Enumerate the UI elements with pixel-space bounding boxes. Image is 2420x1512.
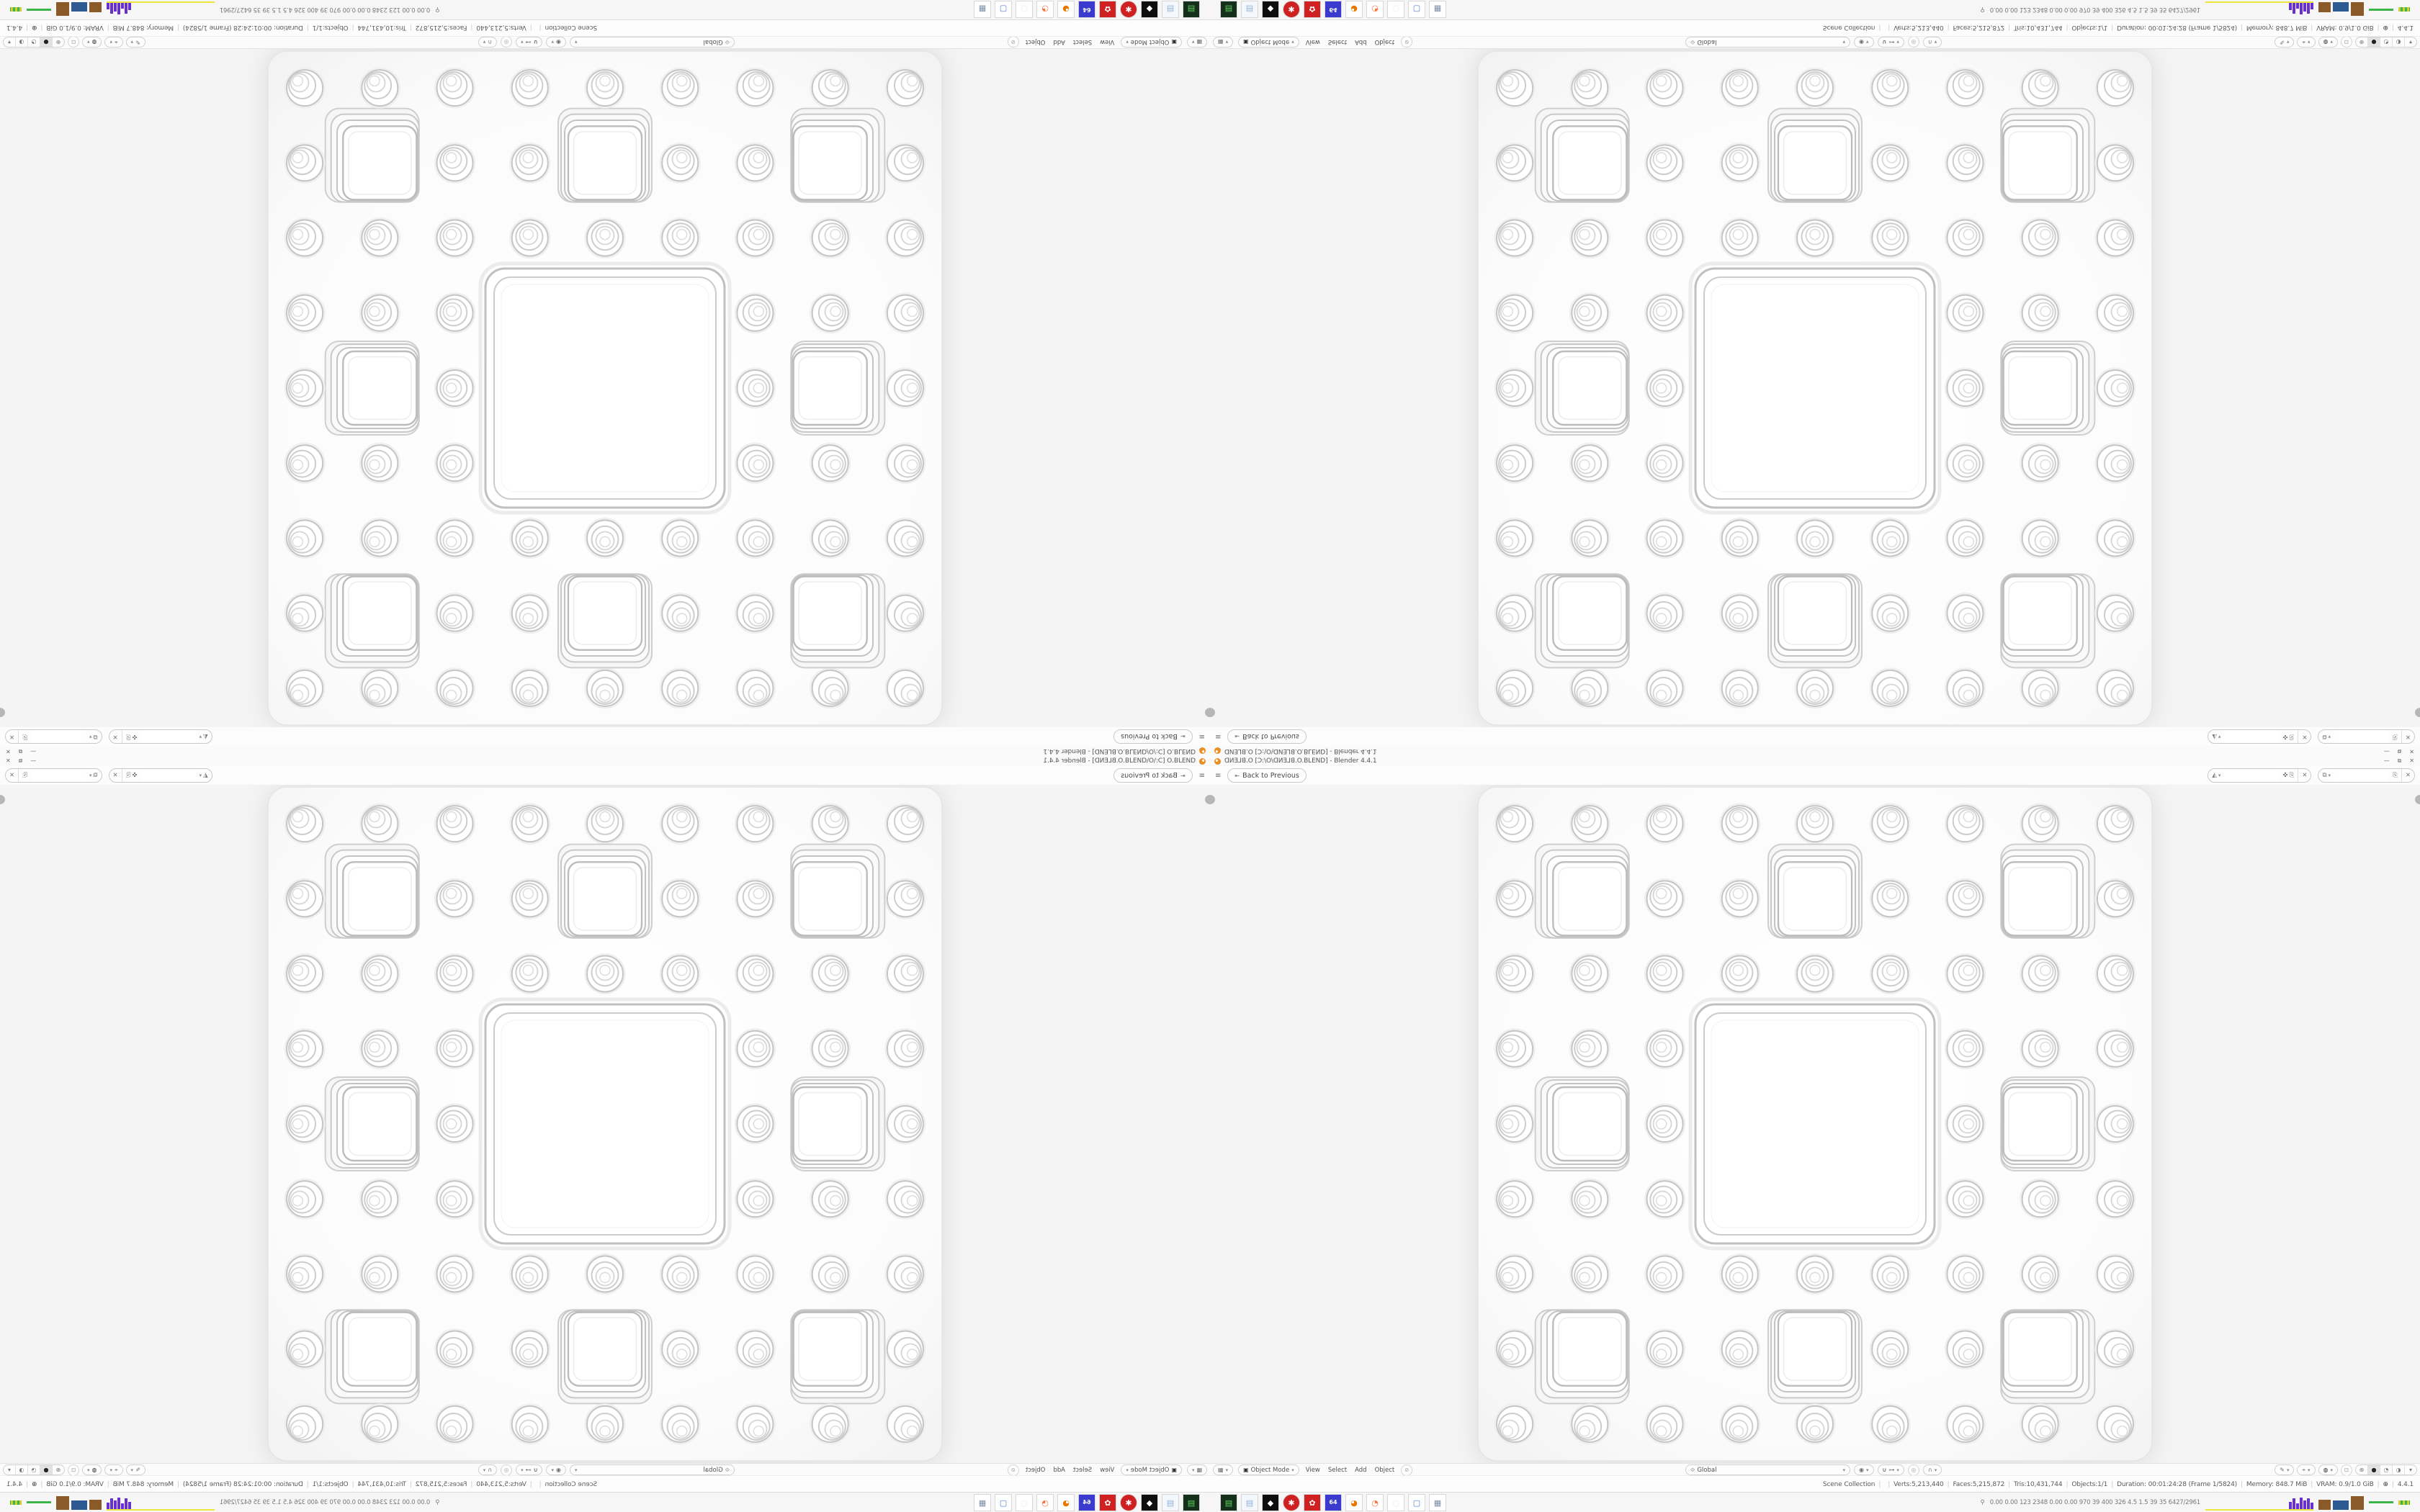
chevron-down-icon: ▾	[552, 1467, 555, 1473]
taskbar-app-blender[interactable]: ◕	[1345, 1494, 1363, 1511]
viewport-header: ▦ ▾ ▣ Object Mode ▾ View Select Add Obje…	[1210, 36, 2420, 49]
snap-dropdown[interactable]: ∪ ⊶ ▾	[1878, 37, 1904, 48]
unlink-icon[interactable]: ✕	[2406, 733, 2411, 740]
falloff-dropdown[interactable]: ∩ ▾	[478, 1464, 497, 1475]
sidebar-toggle-handle[interactable]	[2415, 708, 2420, 717]
taskbar-app-red-gear[interactable]: ✱	[1120, 1494, 1137, 1511]
chevron-down-icon: ▾	[1866, 1467, 1869, 1473]
shading-solid-button[interactable]: ●	[2367, 37, 2380, 47]
gizmo-dropdown[interactable]: ⌖ ▾	[2297, 1464, 2315, 1475]
annotate-dropdown[interactable]: ✎ ▾	[126, 37, 145, 48]
pin-icon[interactable]: ✜	[2282, 772, 2287, 779]
editor-type-icon: ▦	[1218, 39, 1224, 45]
xray-toggle[interactable]: ⊡	[2341, 37, 2352, 48]
scene-selector[interactable]: ◭ ▾ ✜ ⎘ ✕	[2208, 768, 2311, 783]
window-title: ꓷИƎ⅃ꓭ.O [Ɔ:\O\ꓷИƎ⅃ꓭ.O.BLEND] - Blender 4…	[1043, 757, 1196, 765]
gizmo-dropdown[interactable]: ⌖ ▾	[2297, 37, 2315, 48]
chevron-down-icon: ▾	[1842, 1467, 1845, 1473]
toolbar-toggle-handle[interactable]	[1205, 795, 1210, 804]
chevron-down-icon[interactable]: ▾	[200, 773, 202, 778]
proportional-editing-toggle[interactable]: ◎	[501, 1464, 512, 1476]
editor-type-button[interactable]: ▦ ▾	[1213, 1464, 1233, 1475]
copy-icon[interactable]: ⎘	[2290, 733, 2295, 740]
scene-icon: ◭	[203, 733, 208, 740]
cpu-graph	[2205, 1495, 2313, 1511]
menu-view[interactable]: View	[1304, 1467, 1322, 1474]
view-layer-name-input[interactable]	[31, 730, 86, 743]
close-button[interactable]: ✕	[2409, 757, 2414, 765]
cpu-graph	[2205, 1, 2313, 17]
menu-hamburger-icon[interactable]: ≡	[1215, 733, 1221, 741]
viewport-3d[interactable]	[1210, 49, 2420, 727]
view-layer-selector[interactable]: ⧉ ▾ ⎘ ✕	[2318, 768, 2415, 783]
gizmo-icon: ⌖	[115, 1467, 118, 1474]
chevron-down-icon: ▾	[521, 40, 524, 45]
chevron-down-icon: ▾	[2330, 40, 2333, 45]
status-memory: Memory: 848.7 MiB	[2237, 1481, 2307, 1488]
pivot-icon: ◉	[556, 39, 561, 45]
menu-add[interactable]: Add	[1353, 1467, 1368, 1474]
shading-wireframe-button[interactable]: ⊕	[53, 1465, 64, 1475]
gizmo-dropdown[interactable]: ⌖ ▾	[105, 37, 123, 48]
view-layer-selector[interactable]: ⧉ ▾ ⎘ ✕	[2318, 729, 2415, 744]
taskbar-app-ghost[interactable]: ○	[1387, 1, 1404, 18]
annotate-dropdown[interactable]: ✎ ▾	[2275, 1464, 2294, 1475]
menger-sponge-render	[1477, 50, 2153, 726]
taskbar-app-floppy-64[interactable]: 64	[1325, 1494, 1342, 1511]
view-layer-selector[interactable]: ⧉ ▾ ⎘ ✕	[5, 768, 102, 783]
taskbar-app-red-gear[interactable]: ✱	[1120, 1, 1137, 18]
active-tool-icon[interactable]: ⊘	[1401, 37, 1412, 48]
viewport-3d[interactable]	[1210, 785, 2420, 1463]
shading-solid-button[interactable]: ●	[40, 37, 53, 47]
scene-icon: ◭	[2212, 733, 2217, 740]
status-objects: Objects:1/1	[2062, 1481, 2107, 1488]
editor-type-icon: ▦	[1218, 1467, 1224, 1473]
status-objects: Objects:1/1	[313, 1481, 358, 1488]
shading-mode-switch: ⊕ ● ◔ ◑ ▾	[2355, 37, 2417, 48]
person-icon: ⚲	[1980, 6, 1984, 13]
restore-button[interactable]: ⧉	[2398, 747, 2402, 755]
unlink-icon[interactable]: ✕	[113, 772, 118, 779]
sidebar-toggle-handle[interactable]	[2415, 795, 2420, 804]
copy-icon[interactable]: ⎘	[126, 733, 131, 740]
shading-material-button[interactable]: ◔	[2380, 37, 2392, 47]
pin-icon[interactable]: ✜	[132, 772, 137, 779]
proportional-editing-toggle[interactable]: ◎	[1908, 1464, 1919, 1476]
back-arrow-icon: ⇤	[1234, 773, 1240, 779]
taskbar-app-disk-utility[interactable]: ▤	[1183, 1, 1200, 18]
menu-object[interactable]: Object	[1373, 1467, 1397, 1474]
status-tris: Tris:10,431,744	[2004, 24, 2062, 32]
status-faces: Faces:5,215,872	[416, 1481, 477, 1488]
menu-view[interactable]: View	[1098, 1467, 1116, 1474]
sidebar-toggle-handle[interactable]	[0, 795, 5, 804]
chevron-down-icon: ▾	[1192, 1467, 1195, 1473]
gizmo-dropdown[interactable]: ⌖ ▾	[105, 1464, 123, 1475]
disk-block	[89, 1500, 102, 1510]
shading-solid-button[interactable]: ●	[40, 1465, 53, 1475]
annotate-dropdown[interactable]: ✎ ▾	[126, 1464, 145, 1475]
taskbar-app-red-gear[interactable]: ✱	[1283, 1, 1300, 18]
unlink-icon[interactable]: ✕	[2406, 772, 2411, 779]
unlink-icon[interactable]: ✕	[9, 733, 14, 740]
taskbar-app-blender[interactable]: ◕	[1057, 1494, 1075, 1511]
taskbar-app-floppy-64[interactable]: 64	[1078, 1, 1095, 18]
minimize-button[interactable]: —	[30, 747, 36, 755]
snap-target-icon: ⊶	[526, 39, 532, 45]
menu-hamburger-icon[interactable]: ≡	[1215, 772, 1221, 780]
taskbar-app-blender[interactable]: ◕	[1345, 1, 1363, 18]
transform-orientation-dropdown[interactable]: ⟐ Global ▾	[570, 37, 735, 48]
annotate-dropdown[interactable]: ✎ ▾	[2275, 37, 2294, 48]
toolbar-toggle-handle[interactable]	[1210, 795, 1215, 804]
gizmo-icon: ⌖	[2302, 39, 2305, 46]
xray-toggle[interactable]: ⊡	[68, 37, 79, 48]
cpu-graph	[107, 1, 215, 17]
menu-add[interactable]: Add	[1052, 1467, 1066, 1474]
chevron-down-icon[interactable]: ▾	[89, 734, 92, 739]
window-title: ꓷИƎ⅃ꓭ.O [Ɔ:\O\ꓷИƎ⅃ꓭ.O.BLEND] - Blender 4…	[1043, 747, 1196, 755]
shading-rendered-button[interactable]: ◑	[16, 37, 28, 47]
restore-button[interactable]: ⧉	[19, 747, 23, 755]
minimize-button[interactable]: —	[30, 757, 36, 765]
taskbar-app-notepad[interactable]: ▤	[1162, 1, 1179, 18]
viewport-header: ▦ ▾ ▣ Object Mode ▾ View Select Add Obje…	[0, 36, 1210, 49]
chevron-down-icon: ▾	[87, 1467, 90, 1473]
blender-topbar: ≡ ⇤ Back to Previous ◭ ▾ ✜ ⎘	[1210, 726, 2420, 746]
pin-icon[interactable]: ✜	[132, 733, 137, 740]
blender-window: ꓷИƎ⅃ꓭ.O [Ɔ:\O\ꓷИƎ⅃ꓭ.O.BLEND] - Blender 4…	[0, 0, 1210, 756]
falloff-dropdown[interactable]: ∩ ▾	[1923, 1464, 1942, 1475]
view-layer-name-input[interactable]	[2334, 769, 2389, 782]
taskbar-app-display[interactable]: ▢	[1408, 1, 1425, 18]
taskbar-app-disk-utility[interactable]: ▤	[1220, 1494, 1237, 1511]
network-graph-line	[27, 1501, 51, 1503]
network-graph-line	[27, 9, 51, 12]
taskbar-app-graphics[interactable]: ◆	[1141, 1494, 1158, 1511]
taskbar-app-graphics[interactable]: ◆	[1262, 1494, 1279, 1511]
menu-object[interactable]: Object	[1024, 39, 1047, 46]
blender-logo-icon	[1214, 758, 1221, 765]
transform-orientation-dropdown[interactable]: ⟐ Global ▾	[570, 1464, 735, 1475]
copy-icon[interactable]: ⎘	[2393, 733, 2398, 740]
taskbar-app-red-settings[interactable]: ✿	[1304, 1, 1321, 18]
desktop-taskbar: ▤ ▤ ◆ ✱ ✿ 64 ◕ ◔ ○ ▢ ▦ ⚲ 0.00 0.00 123 2…	[0, 0, 1210, 20]
taskbar-app-calculator[interactable]: ▦	[1429, 1494, 1446, 1511]
mode-dropdown[interactable]: ▣ Object Mode ▾	[1238, 37, 1299, 48]
copy-icon[interactable]: ⎘	[126, 772, 131, 779]
shading-dropdown[interactable]: ▾	[4, 37, 16, 47]
chevron-down-icon: ▾	[575, 1467, 578, 1473]
shading-dropdown[interactable]: ▾	[2404, 37, 2416, 47]
pivot-icon: ◉	[556, 1467, 561, 1473]
menu-select[interactable]: Select	[1327, 1467, 1348, 1474]
menu-select[interactable]: Select	[1327, 39, 1348, 46]
shading-material-button[interactable]: ◔	[28, 37, 40, 47]
xray-toggle[interactable]: ⊡	[68, 1464, 79, 1476]
chevron-down-icon: ▾	[1226, 40, 1229, 45]
shading-rendered-button[interactable]: ◑	[16, 1465, 28, 1475]
proportional-editing-toggle[interactable]: ◎	[501, 37, 512, 48]
chevron-down-icon: ▾	[1226, 1467, 1229, 1473]
unlink-icon[interactable]: ✕	[9, 772, 14, 779]
blender-window: ꓷИƎ⅃ꓭ.O [Ɔ:\O\ꓷИƎ⅃ꓭ.O.BLEND] - Blender 4…	[1210, 0, 2420, 756]
status-verts: Verts:5,213,440	[476, 24, 535, 32]
editor-type-button[interactable]: ▦ ▾	[1213, 37, 1233, 48]
shading-mode-switch: ⊕ ● ◔ ◑ ▾	[3, 37, 65, 48]
status-duration: Duration: 00:01:24:28 (Frame 1/5824)	[2107, 24, 2237, 32]
menu-hamburger-icon[interactable]: ≡	[1199, 733, 1205, 741]
chevron-down-icon[interactable]: ▾	[2329, 773, 2331, 778]
status-tris: Tris:10,431,744	[358, 1481, 416, 1488]
blender-logo-icon	[1199, 748, 1206, 755]
falloff-dropdown[interactable]: ∩ ▾	[1923, 37, 1942, 48]
shading-material-button[interactable]: ◔	[28, 1465, 40, 1475]
taskbar-app-disk-utility[interactable]: ▤	[1183, 1494, 1200, 1511]
overlays-dropdown[interactable]: ◍ ▾	[82, 1464, 102, 1475]
taskbar-app-graphics[interactable]: ◆	[1262, 1, 1279, 18]
falloff-icon: ∩	[1928, 39, 1932, 45]
shading-rendered-button[interactable]: ◑	[2392, 37, 2404, 47]
taskbar-app-graphics[interactable]: ◆	[1141, 1, 1158, 18]
taskbar-app-ghost[interactable]: ○	[1387, 1494, 1404, 1511]
taskbar-app-red-settings[interactable]: ✿	[1099, 1, 1116, 18]
restore-button[interactable]: ⧉	[19, 757, 23, 765]
falloff-dropdown[interactable]: ∩ ▾	[478, 37, 497, 48]
unlink-icon[interactable]: ✕	[2302, 772, 2307, 779]
taskbar-app-firefox[interactable]: ◔	[1366, 1494, 1384, 1511]
active-tool-icon[interactable]: ⊘	[1008, 1464, 1019, 1476]
chevron-down-icon: ▾	[521, 1467, 524, 1473]
viewport-3d[interactable]	[0, 49, 1210, 727]
menu-select[interactable]: Select	[1072, 39, 1093, 46]
menu-add[interactable]: Add	[1353, 39, 1368, 46]
window-title-bar: ꓷИƎ⅃ꓭ.O [Ɔ:\O\ꓷИƎ⅃ꓭ.O.BLEND] - Blender 4…	[1210, 756, 2420, 767]
shading-wireframe-button[interactable]: ⊕	[2356, 37, 2367, 47]
proportional-editing-toggle[interactable]: ◎	[1908, 37, 1919, 48]
unlink-icon[interactable]: ✕	[113, 733, 118, 740]
scene-name-input[interactable]	[141, 730, 196, 743]
status-bar: Scene Collection Verts:5,213,440 Faces:5…	[0, 1475, 1210, 1493]
close-button[interactable]: ✕	[6, 757, 11, 765]
scene-name-input[interactable]	[141, 769, 196, 782]
taskbar-app-display[interactable]: ▢	[995, 1494, 1012, 1511]
object-mode-icon: ▣	[1171, 39, 1177, 45]
menu-add[interactable]: Add	[1052, 39, 1066, 46]
taskbar-app-display[interactable]: ▢	[995, 1, 1012, 18]
annotate-pen-icon: ✎	[135, 39, 140, 45]
orientation-icon: ⟐	[1690, 39, 1695, 46]
taskbar-app-firefox[interactable]: ◔	[1366, 1, 1384, 18]
taskbar-app-red-settings[interactable]: ✿	[1304, 1494, 1321, 1511]
scene-name-input[interactable]	[2224, 730, 2279, 743]
shading-solid-button[interactable]: ●	[2367, 1465, 2380, 1475]
mode-dropdown[interactable]: ▣ Object Mode ▾	[1121, 37, 1182, 48]
taskbar-app-ghost[interactable]: ○	[1016, 1, 1033, 18]
view-layer-selector[interactable]: ⧉ ▾ ⎘ ✕	[5, 729, 102, 744]
taskbar-app-floppy-64[interactable]: 64	[1078, 1494, 1095, 1511]
network-globe-icon: ⊕	[2374, 1481, 2388, 1488]
pivot-point-dropdown[interactable]: ◉ ▾	[1854, 37, 1874, 48]
snap-target-icon: ⊶	[526, 1467, 532, 1473]
shading-dropdown[interactable]: ▾	[2404, 1465, 2416, 1475]
chevron-down-icon[interactable]: ▾	[89, 773, 92, 778]
snap-dropdown[interactable]: ∪ ⊶ ▾	[516, 37, 542, 48]
toolbar-toggle-handle[interactable]	[1205, 708, 1210, 717]
transform-orientation-dropdown[interactable]: ⟐ Global ▾	[1685, 1464, 1850, 1475]
memory-block	[71, 3, 87, 12]
overlays-dropdown[interactable]: ◍ ▾	[82, 37, 102, 48]
status-vram: VRAM: 0.9/1.0 GiB	[46, 1481, 112, 1488]
overlays-dropdown[interactable]: ◍ ▾	[2318, 37, 2339, 48]
window-copy-top-left: ꓷИƎ⅃ꓭ.O [Ɔ:\O\ꓷИƎ⅃ꓭ.O.BLEND] - Blender 4…	[0, 0, 1210, 756]
snap-dropdown[interactable]: ∪ ⊶ ▾	[516, 1464, 542, 1475]
viewport-header: ▦ ▾ ▣ Object Mode ▾ View Select Add Obje…	[0, 1463, 1210, 1476]
mode-dropdown[interactable]: ▣ Object Mode ▾	[1121, 1464, 1182, 1475]
shading-material-button[interactable]: ◔	[2380, 1465, 2392, 1475]
status-memory: Memory: 848.7 MiB	[113, 1481, 183, 1488]
viewport-3d[interactable]	[0, 785, 1210, 1463]
taskbar-app-firefox[interactable]: ◔	[1036, 1494, 1054, 1511]
copy-icon[interactable]: ⎘	[2290, 772, 2295, 779]
blender-topbar: ≡ ⇤ Back to Previous ◭ ▾ ✜ ⎘	[0, 766, 1210, 786]
taskbar-app-notepad[interactable]: ▤	[1241, 1, 1258, 18]
close-button[interactable]: ✕	[2409, 747, 2414, 755]
status-object-name	[1875, 1481, 1884, 1488]
menu-object[interactable]: Object	[1373, 39, 1397, 46]
resource-blocks	[56, 3, 102, 17]
taskbar-app-firefox[interactable]: ◔	[1036, 1, 1054, 18]
resource-blocks	[2318, 1496, 2364, 1510]
chevron-down-icon: ▾	[87, 40, 90, 45]
view-layer-name-input[interactable]	[2334, 730, 2389, 743]
taskbar-app-calculator[interactable]: ▦	[974, 1, 991, 18]
snap-magnet-icon: ∪	[1883, 39, 1887, 45]
editor-type-button[interactable]: ▦ ▾	[1187, 37, 1207, 48]
copy-icon[interactable]: ⎘	[22, 772, 27, 779]
copy-icon[interactable]: ⎘	[2393, 772, 2398, 779]
close-button[interactable]: ✕	[6, 747, 11, 755]
system-tray: ⚲ 0.00 0.00 123 2348 0.00 0.00 970 39 40…	[1980, 1495, 2410, 1511]
taskbar-app-notepad[interactable]: ▤	[1241, 1494, 1258, 1511]
minimize-button[interactable]: —	[2384, 757, 2390, 765]
status-verts: Verts:5,213,440	[1884, 1481, 1943, 1488]
back-to-previous-button[interactable]: ⇤ Back to Previous	[1113, 768, 1193, 783]
taskbar-app-red-gear[interactable]: ✱	[1283, 1494, 1300, 1511]
restore-button[interactable]: ⧉	[2398, 757, 2402, 765]
transform-orientation-dropdown[interactable]: ⟐ Global ▾	[1685, 37, 1850, 48]
xray-toggle[interactable]: ⊡	[2341, 1464, 2352, 1476]
annotate-pen-icon: ✎	[135, 1467, 140, 1473]
menu-object[interactable]: Object	[1024, 1467, 1047, 1474]
taskbar-app-disk-utility[interactable]: ▤	[1220, 1, 1237, 18]
scene-selector[interactable]: ◭ ▾ ✜ ⎘ ✕	[109, 729, 212, 744]
network-activity-icon	[2398, 8, 2410, 12]
back-arrow-icon: ⇤	[1180, 734, 1186, 740]
toolbar-toggle-handle[interactable]	[1210, 708, 1215, 717]
resource-blocks	[2318, 3, 2364, 17]
scene-icon: ◭	[203, 772, 208, 779]
minimize-button[interactable]: —	[2384, 747, 2390, 755]
shading-wireframe-button[interactable]: ⊕	[53, 37, 64, 47]
active-tool-icon[interactable]: ⊘	[1401, 1464, 1412, 1476]
chevron-down-icon[interactable]: ▾	[200, 734, 202, 739]
memory-block	[71, 1500, 87, 1510]
snap-target-icon: ⊶	[1888, 39, 1894, 45]
status-version: 4.4.1	[2388, 1481, 2414, 1488]
desktop-taskbar: ▤ ▤ ◆ ✱ ✿ 64 ◕ ◔ ○ ▢ ▦ ⚲ 0.00 0.00 123 2…	[0, 1492, 1210, 1512]
taskbar-app-floppy-64[interactable]: 64	[1325, 1, 1342, 18]
taskbar-app-red-settings[interactable]: ✿	[1099, 1494, 1116, 1511]
copy-icon[interactable]: ⎘	[22, 733, 27, 740]
menu-view[interactable]: View	[1098, 39, 1116, 46]
editor-type-icon: ▦	[1196, 1467, 1202, 1473]
taskbar-app-calculator[interactable]: ▦	[974, 1494, 991, 1511]
memory-block	[2333, 1500, 2349, 1510]
pin-icon[interactable]: ✜	[2282, 733, 2287, 740]
shading-dropdown[interactable]: ▾	[4, 1465, 16, 1475]
back-to-previous-button[interactable]: ⇤ Back to Previous	[1113, 729, 1193, 744]
overlays-dropdown[interactable]: ◍ ▾	[2318, 1464, 2339, 1475]
shading-rendered-button[interactable]: ◑	[2392, 1465, 2404, 1475]
menger-sponge-render	[267, 50, 943, 726]
scene-name-input[interactable]	[2224, 769, 2279, 782]
snap-magnet-icon: ∪	[534, 39, 538, 45]
view-layer-name-input[interactable]	[31, 769, 86, 782]
chevron-down-icon: ▾	[131, 40, 134, 45]
chevron-down-icon[interactable]: ▾	[2218, 734, 2221, 739]
desktop-taskbar: ▤ ▤ ◆ ✱ ✿ 64 ◕ ◔ ○ ▢ ▦ ⚲ 0.00 0.00 123 2…	[1210, 0, 2420, 20]
menu-select[interactable]: Select	[1072, 1467, 1093, 1474]
unlink-icon[interactable]: ✕	[2302, 733, 2307, 740]
active-tool-icon[interactable]: ⊘	[1008, 37, 1019, 48]
taskbar-app-blender[interactable]: ◕	[1057, 1, 1075, 18]
chevron-down-icon: ▾	[1896, 40, 1899, 45]
back-to-previous-button[interactable]: ⇤ Back to Previous	[1227, 768, 1307, 783]
menu-hamburger-icon[interactable]: ≡	[1199, 772, 1205, 780]
taskbar-app-ghost[interactable]: ○	[1016, 1494, 1033, 1511]
snap-dropdown[interactable]: ∪ ⊶ ▾	[1878, 1464, 1904, 1475]
menger-sponge-render	[267, 786, 943, 1462]
shading-wireframe-button[interactable]: ⊕	[2356, 1465, 2367, 1475]
annotate-pen-icon: ✎	[2280, 39, 2285, 45]
pivot-point-dropdown[interactable]: ◉ ▾	[1854, 1464, 1874, 1475]
taskbar-app-calculator[interactable]: ▦	[1429, 1, 1446, 18]
pivot-point-dropdown[interactable]: ◉ ▾	[547, 1464, 567, 1475]
mode-dropdown[interactable]: ▣ Object Mode ▾	[1238, 1464, 1299, 1475]
chevron-down-icon: ▾	[1866, 40, 1869, 45]
scene-selector[interactable]: ◭ ▾ ✜ ⎘ ✕	[2208, 729, 2311, 744]
orientation-icon: ⟐	[725, 39, 730, 46]
shading-mode-switch: ⊕ ● ◔ ◑ ▾	[3, 1464, 65, 1475]
menu-view[interactable]: View	[1304, 39, 1322, 46]
sidebar-toggle-handle[interactable]	[0, 708, 5, 717]
status-tris: Tris:10,431,744	[358, 24, 416, 32]
taskbar-app-display[interactable]: ▢	[1408, 1494, 1425, 1511]
status-memory: Memory: 848.7 MiB	[113, 24, 183, 32]
annotate-pen-icon: ✎	[2280, 1467, 2285, 1473]
pivot-point-dropdown[interactable]: ◉ ▾	[547, 37, 567, 48]
back-to-previous-button[interactable]: ⇤ Back to Previous	[1227, 729, 1307, 744]
cpu-graph	[107, 1495, 215, 1511]
blender-topbar: ≡ ⇤ Back to Previous ◭ ▾ ✜ ⎘	[1210, 766, 2420, 786]
taskbar-app-notepad[interactable]: ▤	[1162, 1494, 1179, 1511]
chevron-down-icon[interactable]: ▾	[2329, 734, 2331, 739]
chevron-down-icon[interactable]: ▾	[2218, 773, 2221, 778]
editor-type-button[interactable]: ▦ ▾	[1187, 1464, 1207, 1475]
scene-selector[interactable]: ◭ ▾ ✜ ⎘ ✕	[109, 768, 212, 783]
